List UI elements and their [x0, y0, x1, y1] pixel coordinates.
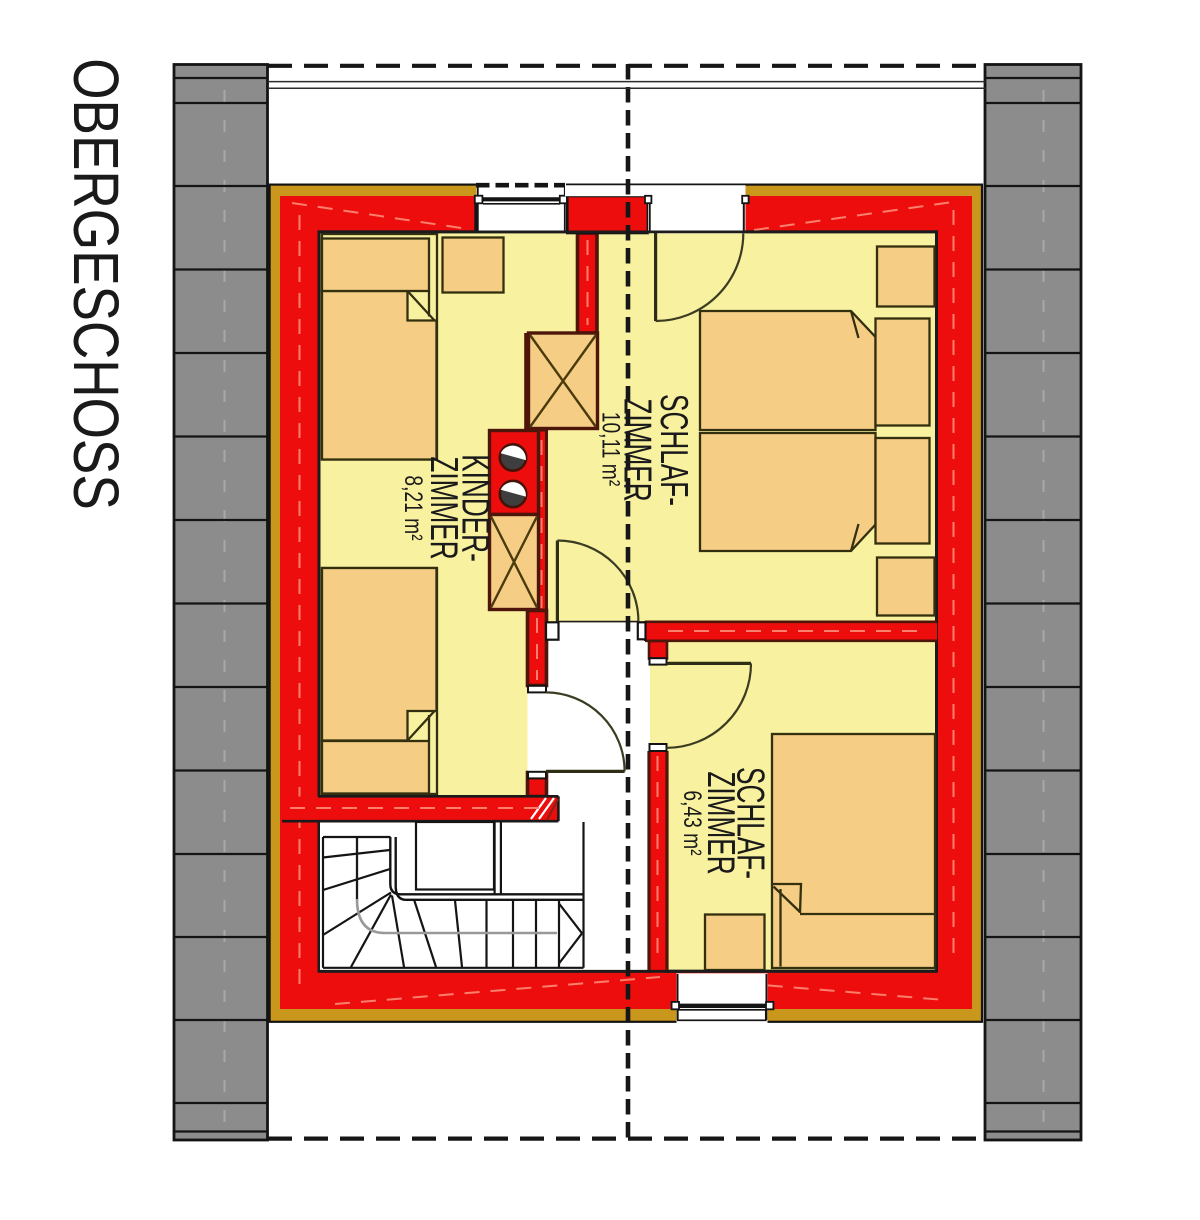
svg-text:OBERGESCHOSS: OBERGESCHOSS [60, 58, 131, 510]
svg-text:ZIMMER: ZIMMER [423, 456, 466, 559]
svg-text:6,43 m²: 6,43 m² [678, 790, 706, 855]
svg-text:10,11 m²: 10,11 m² [597, 412, 625, 486]
svg-text:8,21 m²: 8,21 m² [399, 475, 427, 540]
